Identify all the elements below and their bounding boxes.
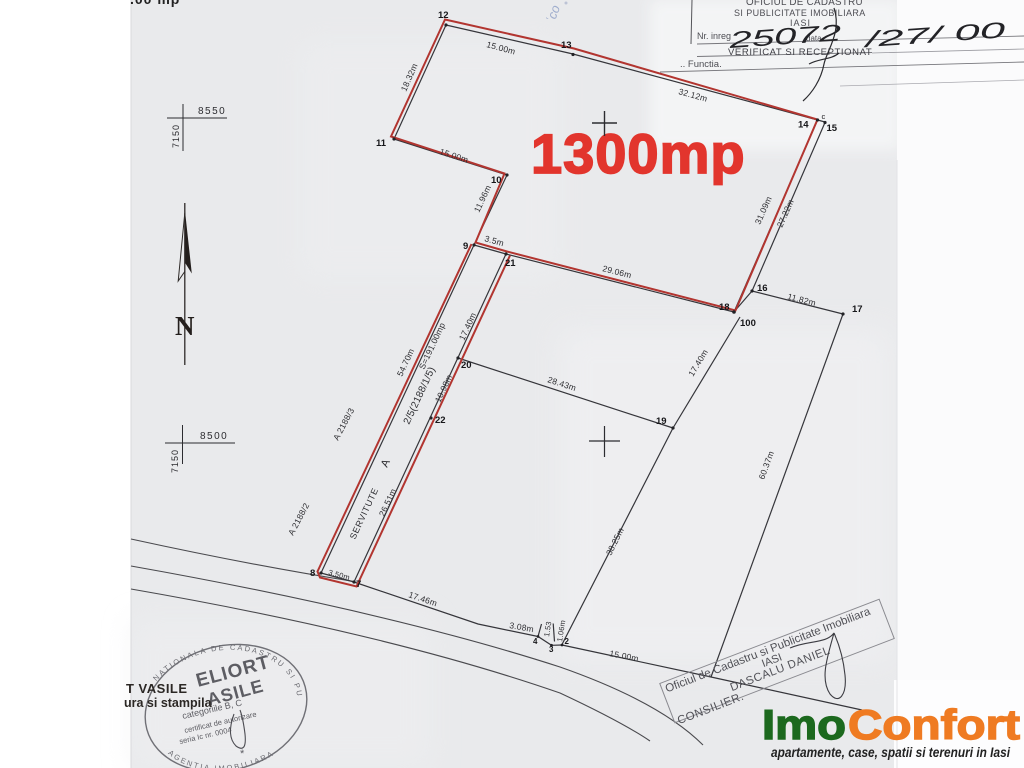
svg-text:SI PUBLICITATE IMOBILIARA: SI PUBLICITATE IMOBILIARA bbox=[734, 8, 866, 18]
svg-text:ura si stampila: ura si stampila bbox=[124, 696, 213, 710]
svg-text:18: 18 bbox=[719, 302, 730, 313]
svg-text:22: 22 bbox=[435, 415, 446, 426]
svg-text:7150: 7150 bbox=[170, 449, 180, 473]
svg-text:*: * bbox=[240, 748, 245, 760]
svg-text:7: 7 bbox=[356, 579, 361, 590]
svg-text:9: 9 bbox=[463, 241, 468, 252]
svg-text:20: 20 bbox=[461, 360, 472, 371]
svg-text:21: 21 bbox=[505, 258, 516, 269]
svg-text:T VASILE: T VASILE bbox=[126, 681, 188, 696]
svg-text:11: 11 bbox=[376, 138, 387, 149]
svg-text:15: 15 bbox=[827, 123, 838, 134]
svg-text:4: 4 bbox=[533, 637, 538, 646]
svg-text:OFICIUL DE CADASTRU: OFICIUL DE CADASTRU bbox=[746, 0, 863, 8]
svg-text:100: 100 bbox=[740, 318, 756, 329]
svg-text:.. Functia.: .. Functia. bbox=[680, 59, 722, 70]
svg-text:7150: 7150 bbox=[171, 124, 181, 148]
svg-text:8550: 8550 bbox=[198, 106, 226, 117]
svg-text:16: 16 bbox=[757, 283, 768, 294]
svg-text:10: 10 bbox=[491, 175, 502, 186]
svg-text:19: 19 bbox=[656, 416, 667, 427]
svg-text:1300mp: 1300mp bbox=[531, 122, 746, 185]
svg-text:N: N bbox=[175, 311, 195, 341]
svg-text:.00 mp: .00 mp bbox=[130, 0, 180, 7]
svg-text:13: 13 bbox=[561, 40, 572, 51]
svg-text:17: 17 bbox=[852, 304, 863, 315]
svg-text:3: 3 bbox=[549, 645, 554, 654]
svg-text:Confort: Confort bbox=[848, 701, 1020, 748]
svg-text:8500: 8500 bbox=[200, 431, 228, 442]
svg-text:2: 2 bbox=[565, 637, 570, 646]
svg-text:14: 14 bbox=[798, 120, 809, 131]
svg-text:12: 12 bbox=[438, 10, 449, 21]
svg-text:apartamente, case, spatii si t: apartamente, case, spatii si terenuri in… bbox=[771, 744, 1011, 760]
svg-text:Nr. inreg: Nr. inreg bbox=[697, 31, 731, 41]
svg-text:8: 8 bbox=[310, 568, 315, 579]
svg-text:Imo: Imo bbox=[762, 701, 846, 748]
svg-text:c: c bbox=[822, 112, 826, 121]
